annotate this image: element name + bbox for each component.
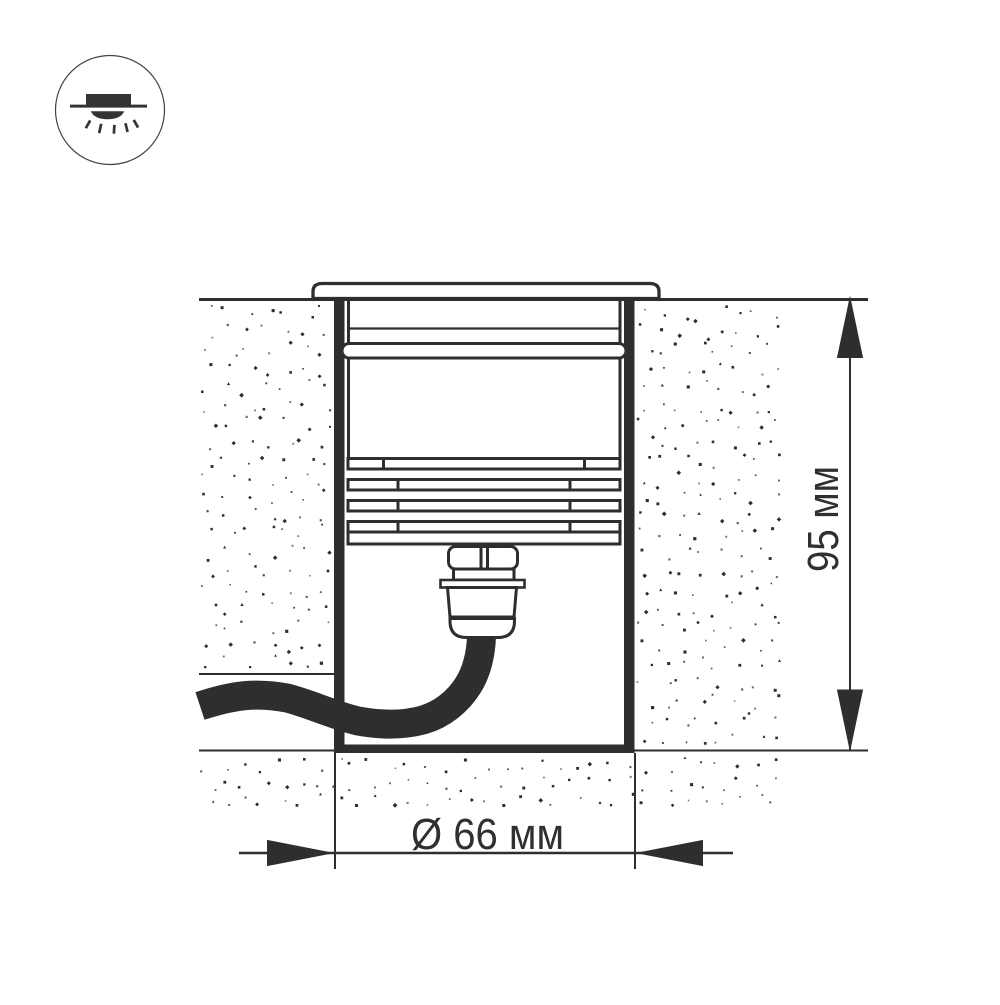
svg-text:Ø 66 мм: Ø 66 мм <box>411 810 564 859</box>
svg-text:95 мм: 95 мм <box>799 466 848 572</box>
